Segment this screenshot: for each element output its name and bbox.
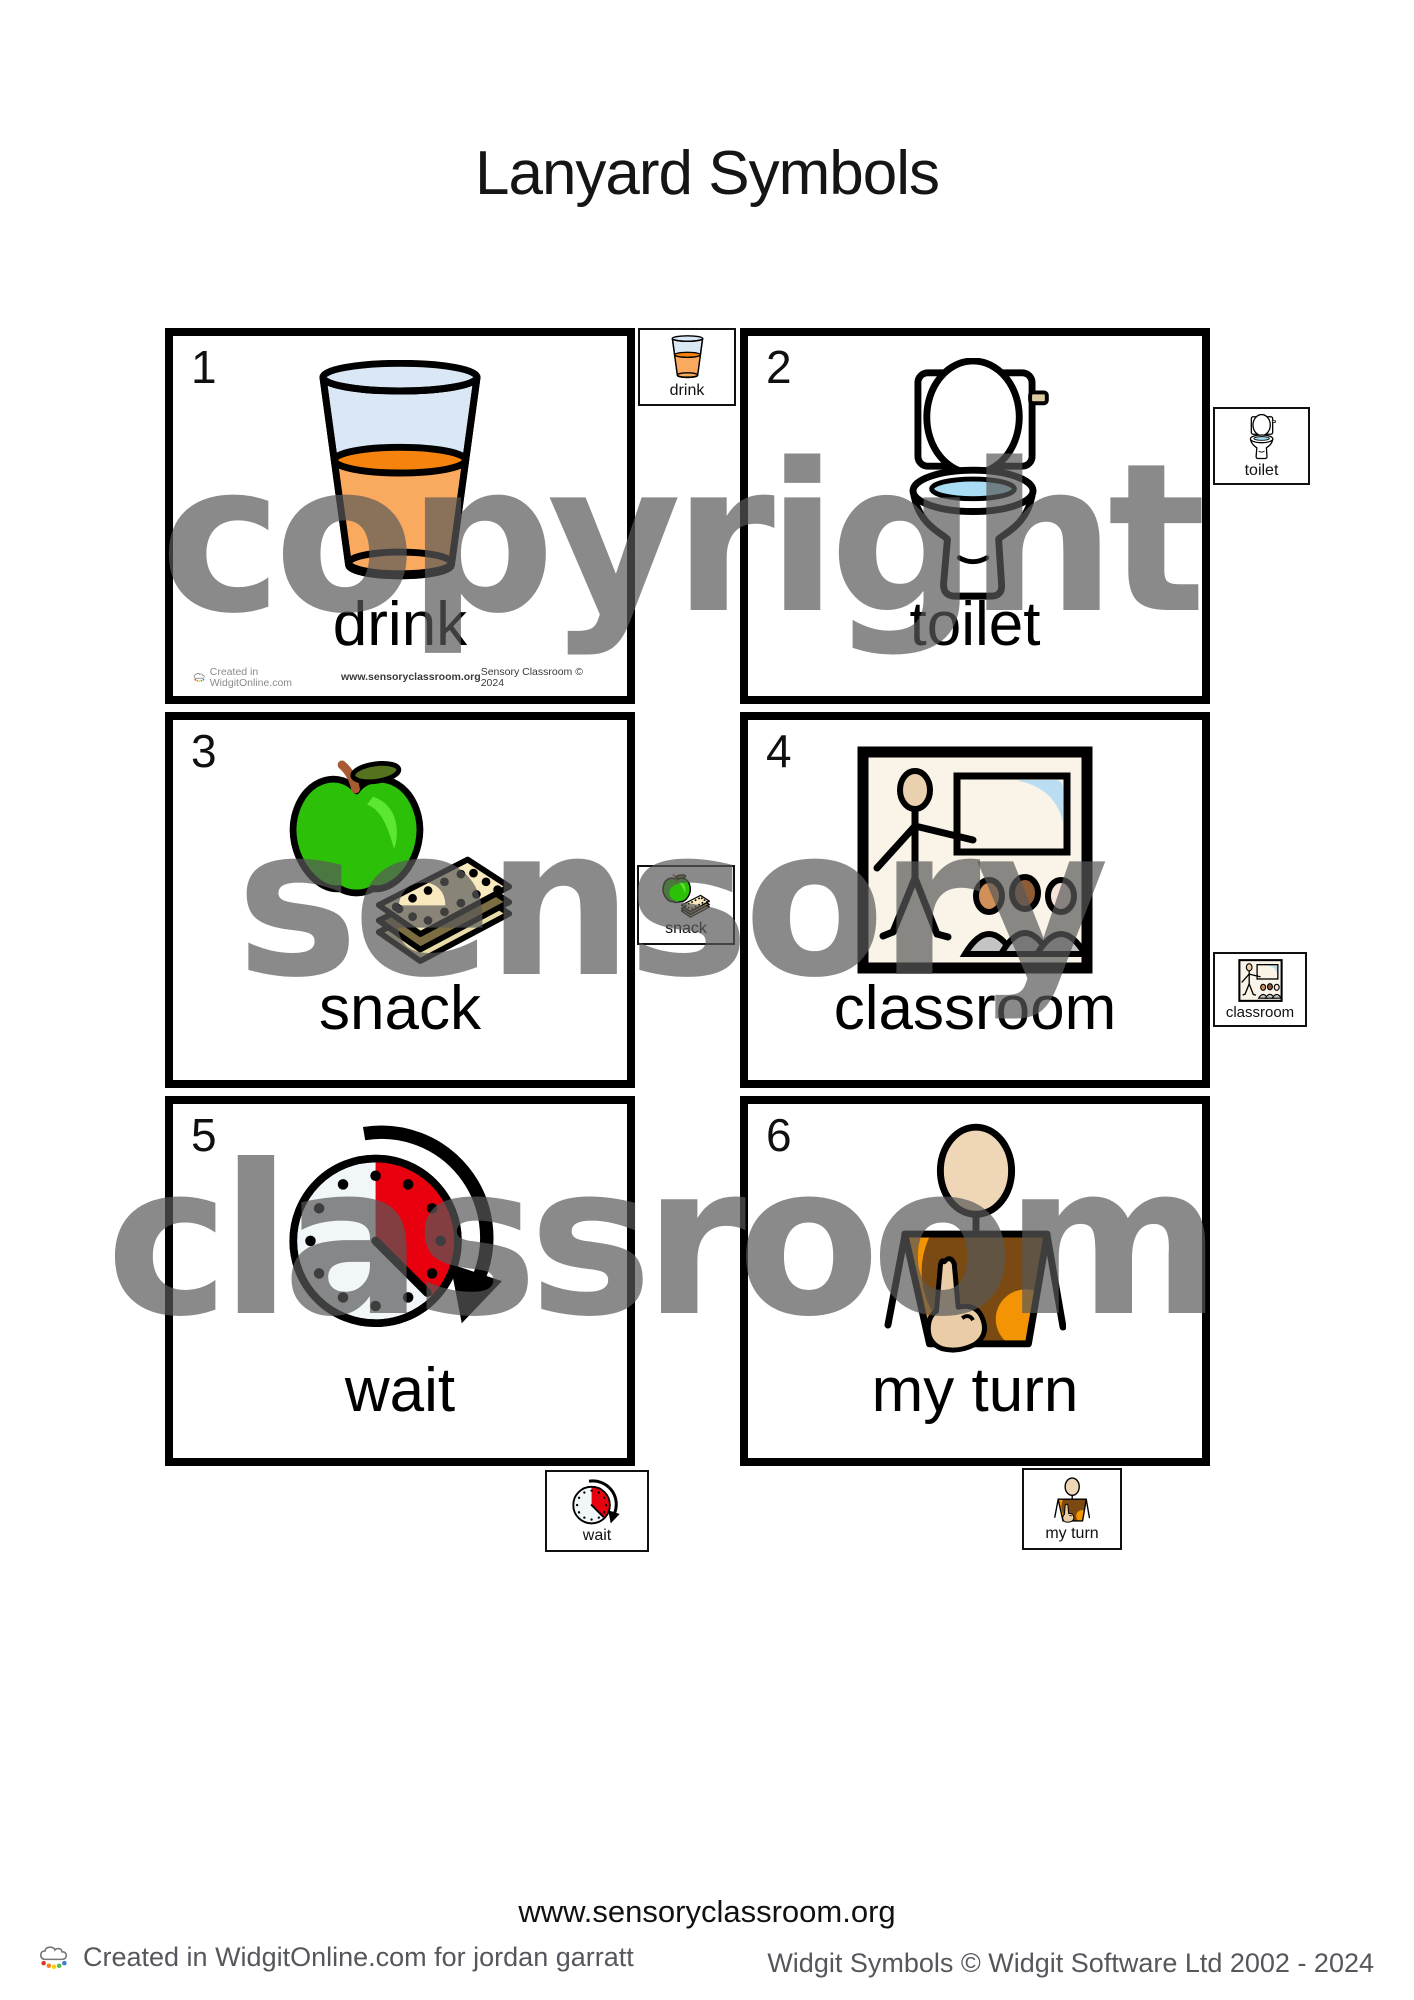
- card-toilet: 2 toilet: [740, 328, 1210, 704]
- thumbnail-toilet: toilet: [1213, 407, 1310, 485]
- card-classroom: 4 classroom: [740, 712, 1210, 1088]
- footer-widgit-copyright: Widgit Symbols © Widgit Software Ltd 200…: [767, 1948, 1374, 1979]
- thumbnail-label: my turn: [1045, 1526, 1098, 1542]
- card-number: 3: [191, 726, 217, 777]
- card-credits-left: Created in WidgitOnline.com: [193, 667, 341, 688]
- snack-symbol: [284, 760, 516, 965]
- thumbnail-label: classroom: [1226, 1005, 1294, 1020]
- thumbnail-snack: snack: [637, 865, 735, 945]
- thumbnail-drink: drink: [638, 328, 736, 406]
- card-snack: 3 snack: [165, 712, 635, 1088]
- drink-thumb-icon: [671, 335, 704, 380]
- card-credits: Created in WidgitOnline.com www.sensoryc…: [193, 667, 607, 688]
- widgit-cloud-icon: [38, 1944, 70, 1971]
- footer-created-in: Created in WidgitOnline.com for jordan g…: [38, 1942, 634, 1973]
- card-number: 2: [766, 342, 792, 393]
- card-number: 6: [766, 1110, 792, 1161]
- drink-symbol: [316, 360, 484, 588]
- thumbnail-classroom: classroom: [1213, 952, 1307, 1027]
- card-credits-right: Sensory Classroom © 2024: [481, 667, 607, 688]
- card-number: 5: [191, 1110, 217, 1161]
- card-label: drink: [173, 594, 627, 656]
- card-credits-center: www.sensoryclassroom.org: [341, 672, 481, 683]
- card-my-turn: 6 my turn: [740, 1096, 1210, 1466]
- website-url: www.sensoryclassroom.org: [0, 1894, 1414, 1930]
- wait-thumb-icon: [572, 1479, 622, 1525]
- my-turn-thumb-icon: [1054, 1477, 1090, 1523]
- card-drink: 1 drink Created in WidgitOnline.com www.…: [165, 328, 635, 704]
- card-label: my turn: [748, 1360, 1202, 1422]
- thumbnail-label: drink: [670, 383, 705, 399]
- page-title: Lanyard Symbols: [0, 138, 1414, 209]
- thumbnail-my-turn: my turn: [1022, 1468, 1122, 1550]
- card-wait: 5 wait: [165, 1096, 635, 1466]
- card-number: 1: [191, 342, 217, 393]
- lanyard-symbols-page: Lanyard Symbols 1 drink Created in Widgi…: [0, 0, 1414, 2000]
- wait-symbol: [288, 1124, 513, 1330]
- thumbnail-label: wait: [583, 1528, 611, 1544]
- widgit-cloud-icon: [193, 672, 206, 683]
- snack-thumb-icon: [661, 874, 711, 918]
- card-label: toilet: [748, 594, 1202, 656]
- my-turn-symbol: [884, 1122, 1066, 1354]
- thumbnail-wait: wait: [545, 1470, 649, 1552]
- toilet-thumb-icon: [1248, 414, 1276, 460]
- card-label: snack: [173, 978, 627, 1040]
- card-label: wait: [173, 1360, 627, 1422]
- classroom-symbol: [857, 746, 1093, 974]
- thumbnail-label: snack: [665, 921, 707, 937]
- thumbnail-label: toilet: [1245, 463, 1279, 479]
- card-label: classroom: [748, 978, 1202, 1040]
- toilet-symbol: [900, 358, 1050, 604]
- classroom-thumb-icon: [1238, 959, 1283, 1002]
- card-number: 4: [766, 726, 792, 777]
